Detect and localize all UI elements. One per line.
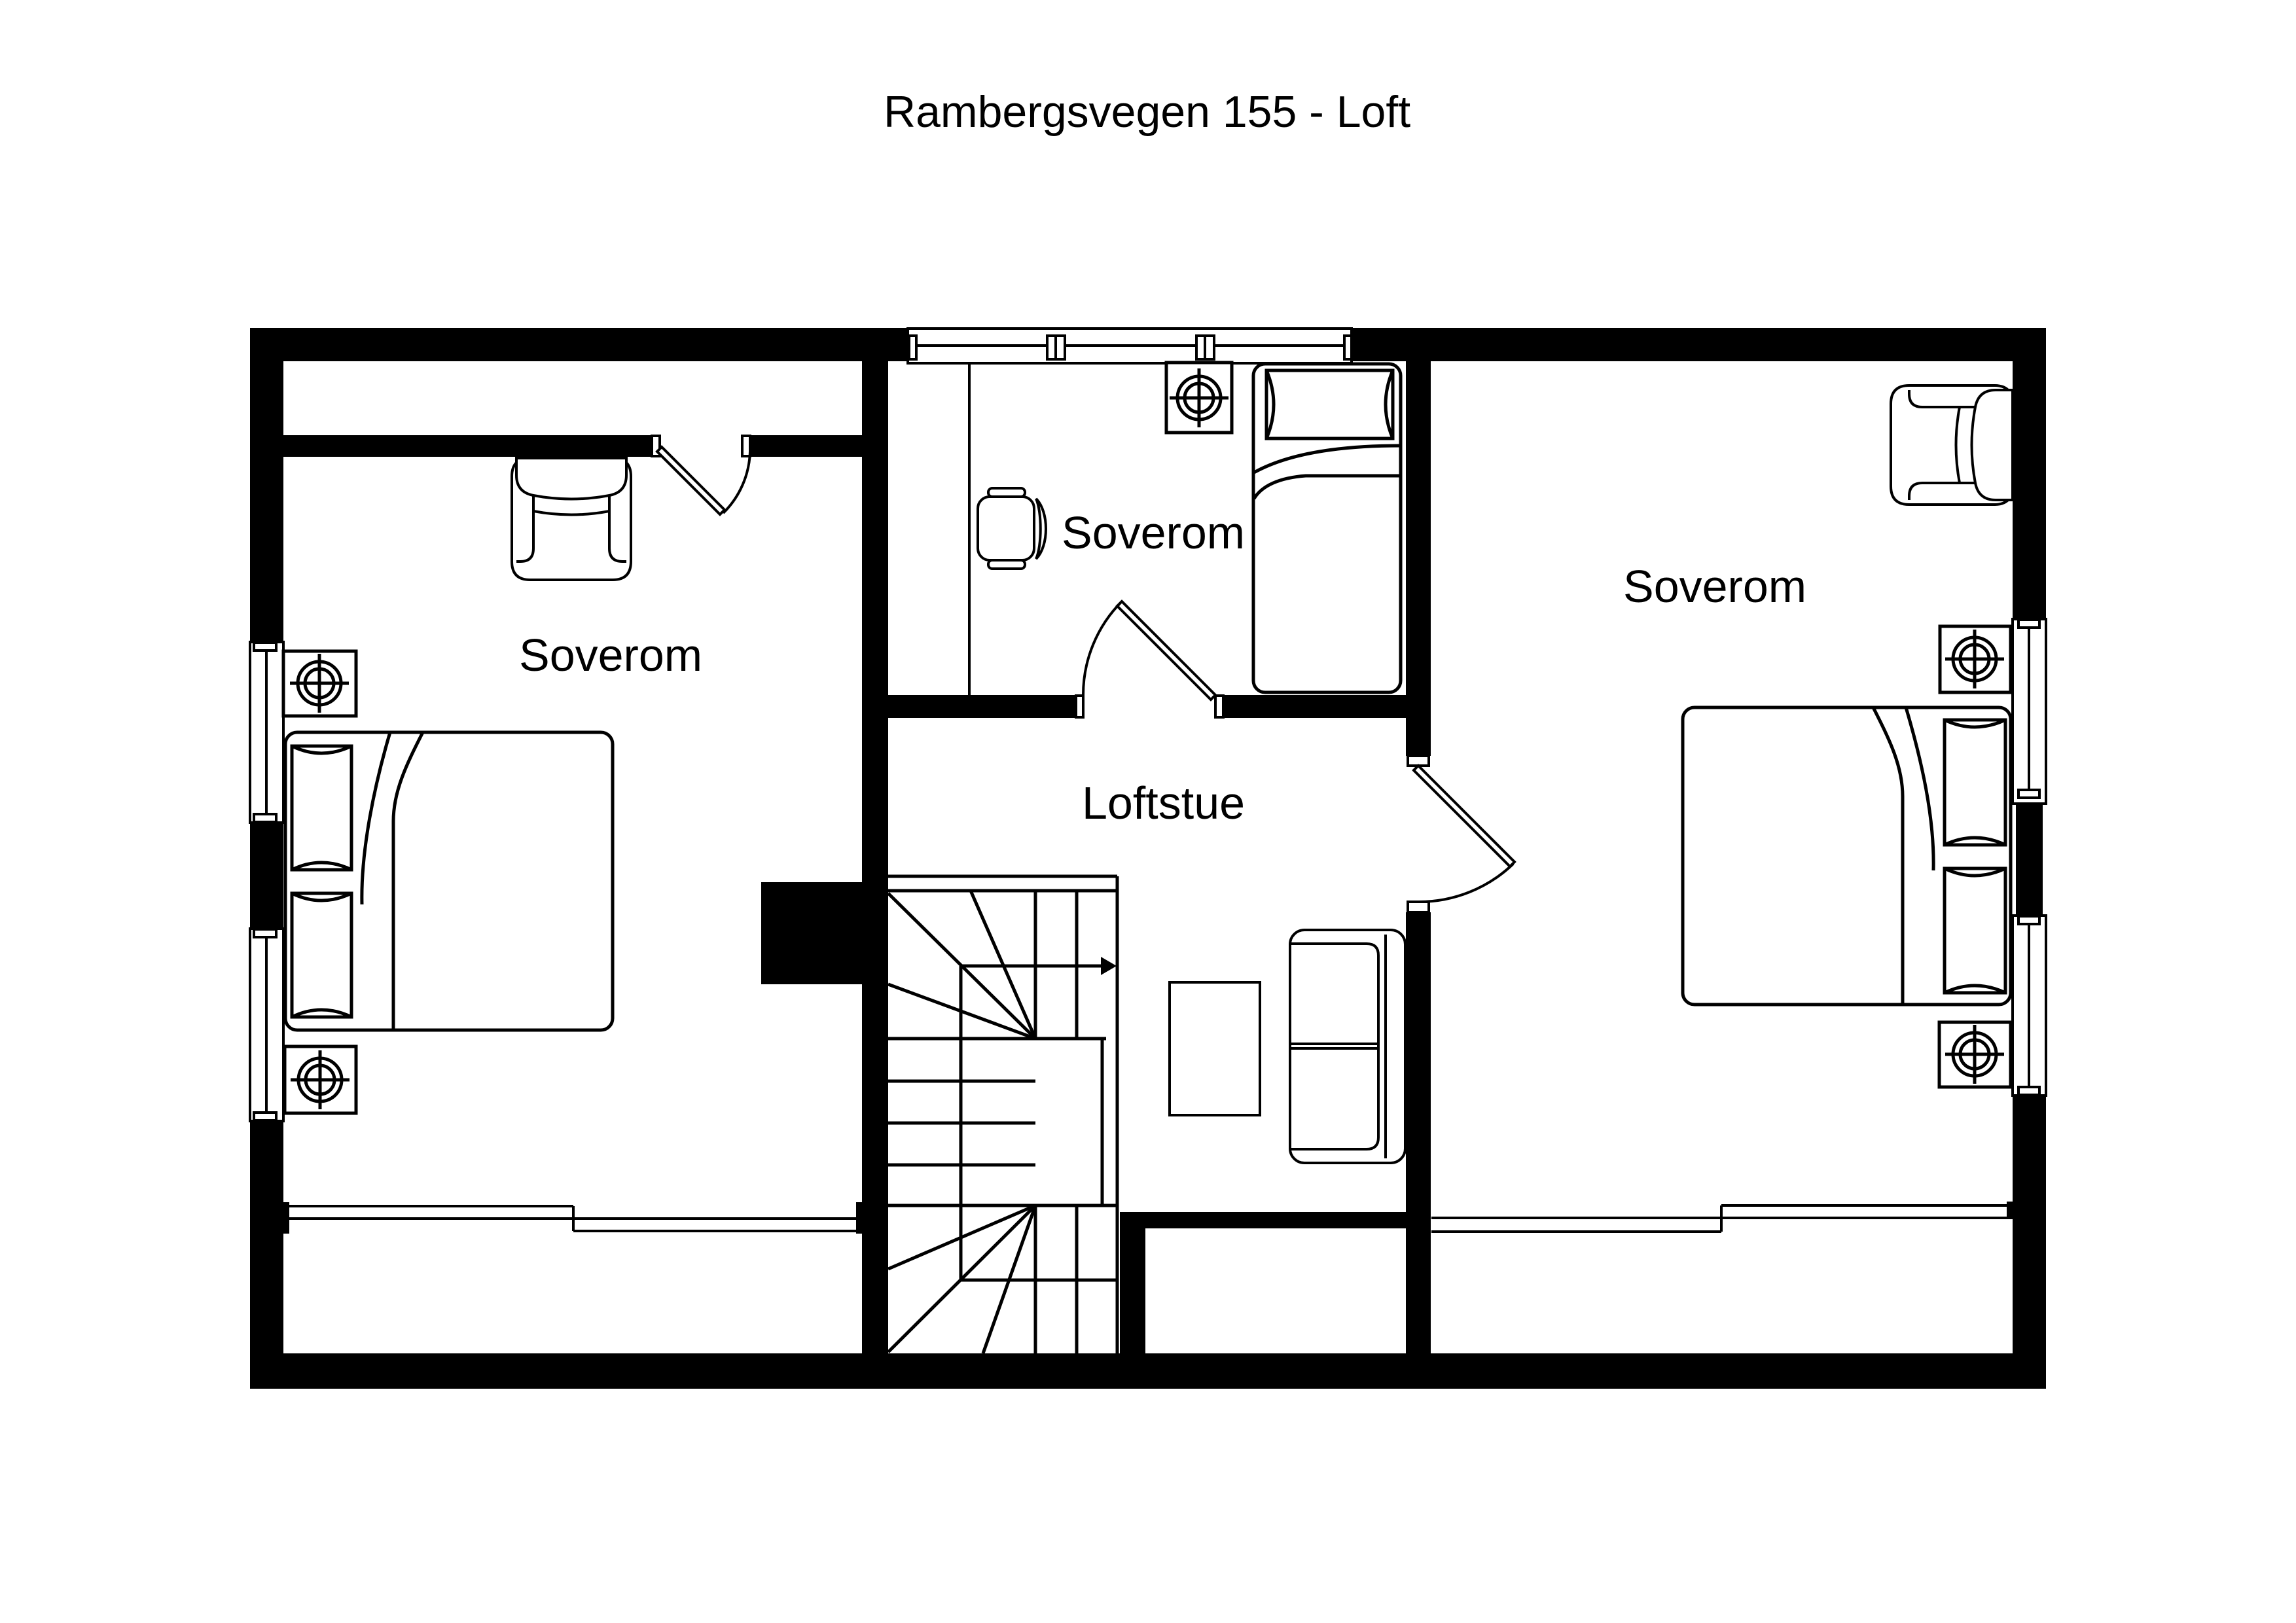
svg-text:Soverom: Soverom <box>1062 507 1245 558</box>
svg-text:Rambergsvegen 155 - Loft: Rambergsvegen 155 - Loft <box>884 87 1410 137</box>
svg-text:Loftstue: Loftstue <box>1082 777 1245 829</box>
svg-text:Soverom: Soverom <box>519 630 702 681</box>
svg-text:Soverom: Soverom <box>1623 561 1806 612</box>
